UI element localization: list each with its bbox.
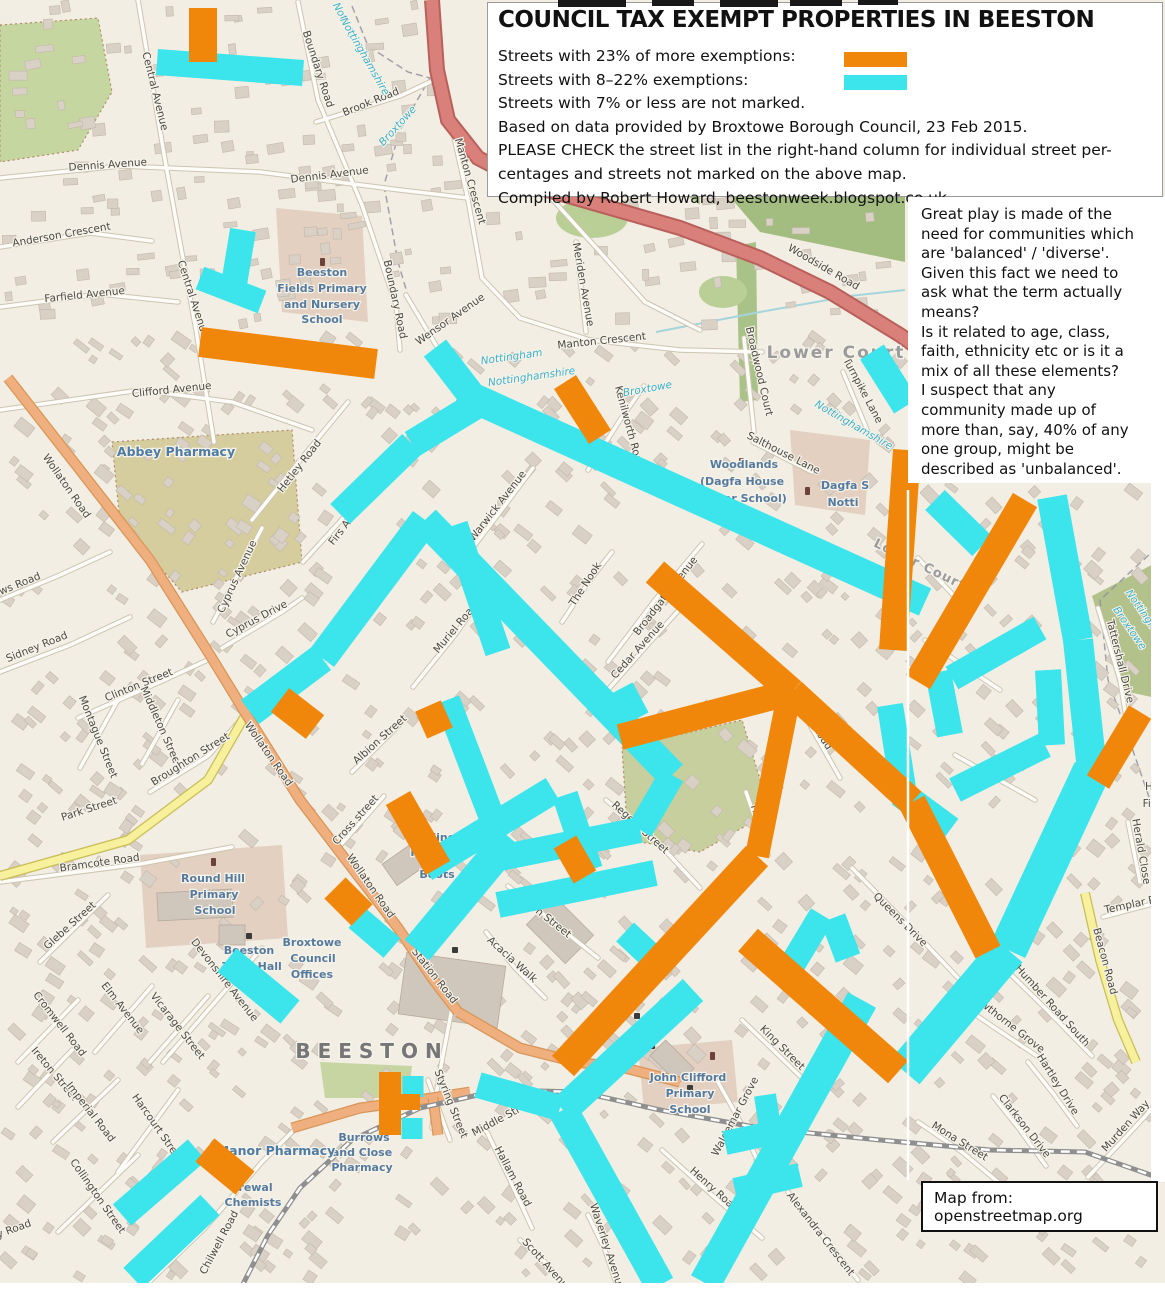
building — [13, 88, 28, 95]
building — [49, 6, 60, 15]
overlay-segment-cyan — [765, 1095, 770, 1128]
building — [550, 259, 567, 267]
building — [714, 277, 722, 288]
building — [303, 135, 315, 145]
building — [320, 243, 330, 255]
building — [421, 199, 433, 212]
building — [193, 134, 208, 144]
building — [529, 277, 546, 288]
building — [245, 154, 258, 164]
map-label: Fields Primary — [277, 282, 367, 295]
building — [405, 249, 412, 255]
building — [106, 43, 121, 53]
overlay-segment-orange — [893, 450, 907, 650]
overlay-segment-cyan — [157, 62, 303, 73]
map-label: BEESTON — [295, 1039, 448, 1063]
map-label: Primary — [190, 888, 239, 901]
commentary-line: community made up of — [921, 401, 1165, 421]
legend-line: Based on data provided by Broxtowe Borou… — [498, 116, 1112, 140]
map-label: (Dagfa House — [700, 475, 784, 488]
building — [72, 55, 86, 64]
building — [43, 19, 53, 29]
building — [221, 140, 234, 152]
building — [515, 231, 522, 240]
building — [257, 7, 272, 13]
overlay-segment-cyan — [833, 918, 848, 958]
building — [111, 208, 120, 216]
map-label: Broxtowe — [283, 936, 342, 949]
overlay-segment-orange — [428, 706, 440, 733]
building — [254, 313, 261, 322]
commentary-line: ask what the term actually — [921, 283, 1165, 303]
map-label: Council — [290, 952, 335, 965]
commentary-line: mix of all these elements? — [921, 362, 1165, 382]
building — [40, 309, 55, 319]
building — [26, 118, 36, 129]
building — [235, 86, 250, 98]
building — [278, 188, 295, 199]
school-icon — [320, 258, 325, 266]
map-label: Woodlands — [710, 458, 779, 471]
crop-fragment — [720, 0, 778, 7]
attribution-text: Map from: openstreetmap.org — [934, 1189, 1156, 1225]
map-label: Primary — [666, 1087, 715, 1100]
large-building — [219, 925, 245, 945]
school-icon — [211, 858, 216, 866]
overlay-segment-orange — [565, 842, 585, 877]
building — [830, 308, 840, 315]
commentary-line: faith, ethnicity etc or is it a — [921, 342, 1165, 362]
building — [238, 318, 248, 329]
legend-line: Streets with 7% or less are not marked. — [498, 92, 1112, 116]
commentary-line: Given this fact we need to — [921, 264, 1165, 284]
building — [792, 228, 810, 234]
building — [124, 46, 131, 54]
building — [786, 301, 796, 308]
building — [5, 292, 13, 301]
building — [166, 6, 174, 16]
building — [702, 320, 718, 330]
legend-line: Streets with 8–22% exemptions: — [498, 69, 1112, 93]
building — [63, 178, 77, 185]
building — [261, 268, 273, 279]
screenshot-root: Central AvenueBoundary RoadBrook RoadDen… — [0, 0, 1165, 1290]
commentary-text: Great play is made of theneed for commun… — [921, 205, 1165, 479]
building — [57, 100, 65, 110]
building — [444, 180, 462, 190]
building — [223, 221, 237, 227]
building — [549, 273, 567, 281]
building — [615, 313, 629, 325]
building — [410, 0, 418, 10]
building — [342, 144, 354, 152]
crop-fragment — [858, 0, 898, 5]
building — [766, 219, 773, 226]
map-label: School — [669, 1103, 710, 1116]
building — [680, 261, 696, 271]
building — [440, 267, 451, 274]
legend-swatch-orange — [844, 52, 907, 67]
commentary-line: one group, might be — [921, 440, 1165, 460]
legend-line: centages and streets not marked on the a… — [498, 163, 1112, 187]
map-label: and Close — [332, 1146, 392, 1159]
building — [228, 44, 236, 55]
overlay-segment-cyan — [938, 672, 950, 735]
map-label: Dagfa S — [821, 479, 869, 492]
building — [317, 189, 335, 202]
page-title: COUNCIL TAX EXEMPT PROPERTIES IN BEESTON — [498, 7, 1162, 33]
poi-icon — [246, 933, 252, 939]
building — [289, 255, 301, 265]
legend-lines: Streets with 23% of more exemptions:Stre… — [498, 45, 1112, 210]
building — [9, 71, 27, 80]
legend-line: Streets with 23% of more exemptions: — [498, 45, 1112, 69]
building — [81, 207, 93, 214]
crop-fragment — [652, 0, 694, 6]
overlay-segment-orange — [335, 888, 362, 915]
green-patch — [699, 276, 747, 308]
crop-fragment — [558, 0, 626, 7]
building — [865, 212, 874, 222]
building — [194, 176, 204, 182]
school-icon — [710, 1052, 715, 1060]
commentary-line: more than, say, 40% of any — [921, 421, 1165, 441]
map-label: Pharmacy — [331, 1161, 392, 1174]
building — [225, 15, 239, 21]
building — [387, 164, 396, 172]
overlay-segment-cyan — [725, 1128, 795, 1143]
overlay-segment-cyan — [1048, 670, 1052, 745]
commentary-line: Is it related to age, class, — [921, 323, 1165, 343]
building — [15, 276, 26, 286]
building — [876, 261, 891, 269]
building — [357, 125, 366, 137]
map-label: Abbey Pharmacy — [117, 444, 235, 459]
building — [403, 144, 411, 154]
map-label: School — [301, 313, 342, 326]
attribution-box: Map from: openstreetmap.org — [921, 1181, 1158, 1232]
building — [433, 156, 443, 166]
map-label: John Clifford — [649, 1071, 727, 1084]
building — [709, 217, 717, 229]
building — [176, 187, 186, 200]
legend-line: PLEASE CHECK the street list in the righ… — [498, 139, 1112, 163]
building — [151, 190, 162, 201]
map-edge-right — [1151, 470, 1165, 1182]
building — [127, 268, 140, 275]
map-label: School — [194, 904, 235, 917]
building — [429, 280, 442, 292]
commentary-line: Great play is made of the — [921, 205, 1165, 225]
building — [191, 108, 201, 115]
poi-icon — [634, 1013, 640, 1019]
commentary-line: I suspect that any — [921, 381, 1165, 401]
map-label: Beeston — [297, 266, 348, 279]
building — [402, 23, 418, 37]
building — [535, 290, 546, 300]
building — [31, 211, 45, 221]
overlay-segment-orange — [280, 700, 315, 727]
building — [118, 169, 132, 180]
crop-fragment — [790, 0, 842, 6]
building — [642, 269, 649, 280]
building — [227, 197, 240, 209]
map-label: Chemists — [225, 1196, 282, 1209]
legend-swatch-cyan — [844, 75, 907, 90]
map-label: Round Hill — [181, 872, 245, 885]
building — [76, 269, 89, 281]
commentary-line: described as 'unbalanced'. — [921, 460, 1165, 480]
building — [304, 227, 317, 237]
overlay-segment-cyan — [622, 688, 638, 718]
building — [337, 204, 343, 212]
building — [330, 257, 341, 264]
building — [340, 212, 356, 219]
building — [644, 243, 656, 253]
building — [107, 199, 118, 209]
building — [859, 272, 866, 282]
building — [214, 121, 229, 133]
commentary-box: Great play is made of theneed for commun… — [908, 197, 1165, 483]
building — [317, 228, 327, 236]
building — [15, 111, 24, 118]
map-label: and Nursery — [284, 298, 360, 311]
overlay-segment-cyan — [735, 1175, 800, 1190]
map-label: Notti — [827, 496, 858, 509]
school-icon — [805, 487, 810, 495]
building — [333, 228, 341, 239]
poi-icon — [452, 947, 458, 953]
overlay-segment-cyan — [1078, 640, 1092, 770]
title-legend-box: COUNCIL TAX EXEMPT PROPERTIES IN BEESTON… — [487, 2, 1163, 197]
commentary-line: need for communities which — [921, 225, 1165, 245]
commentary-line: are 'balanced' / 'diverse'. — [921, 244, 1165, 264]
commentary-line: means? — [921, 303, 1165, 323]
map-label: Offices — [291, 968, 334, 981]
building — [729, 220, 746, 227]
building — [486, 212, 500, 225]
